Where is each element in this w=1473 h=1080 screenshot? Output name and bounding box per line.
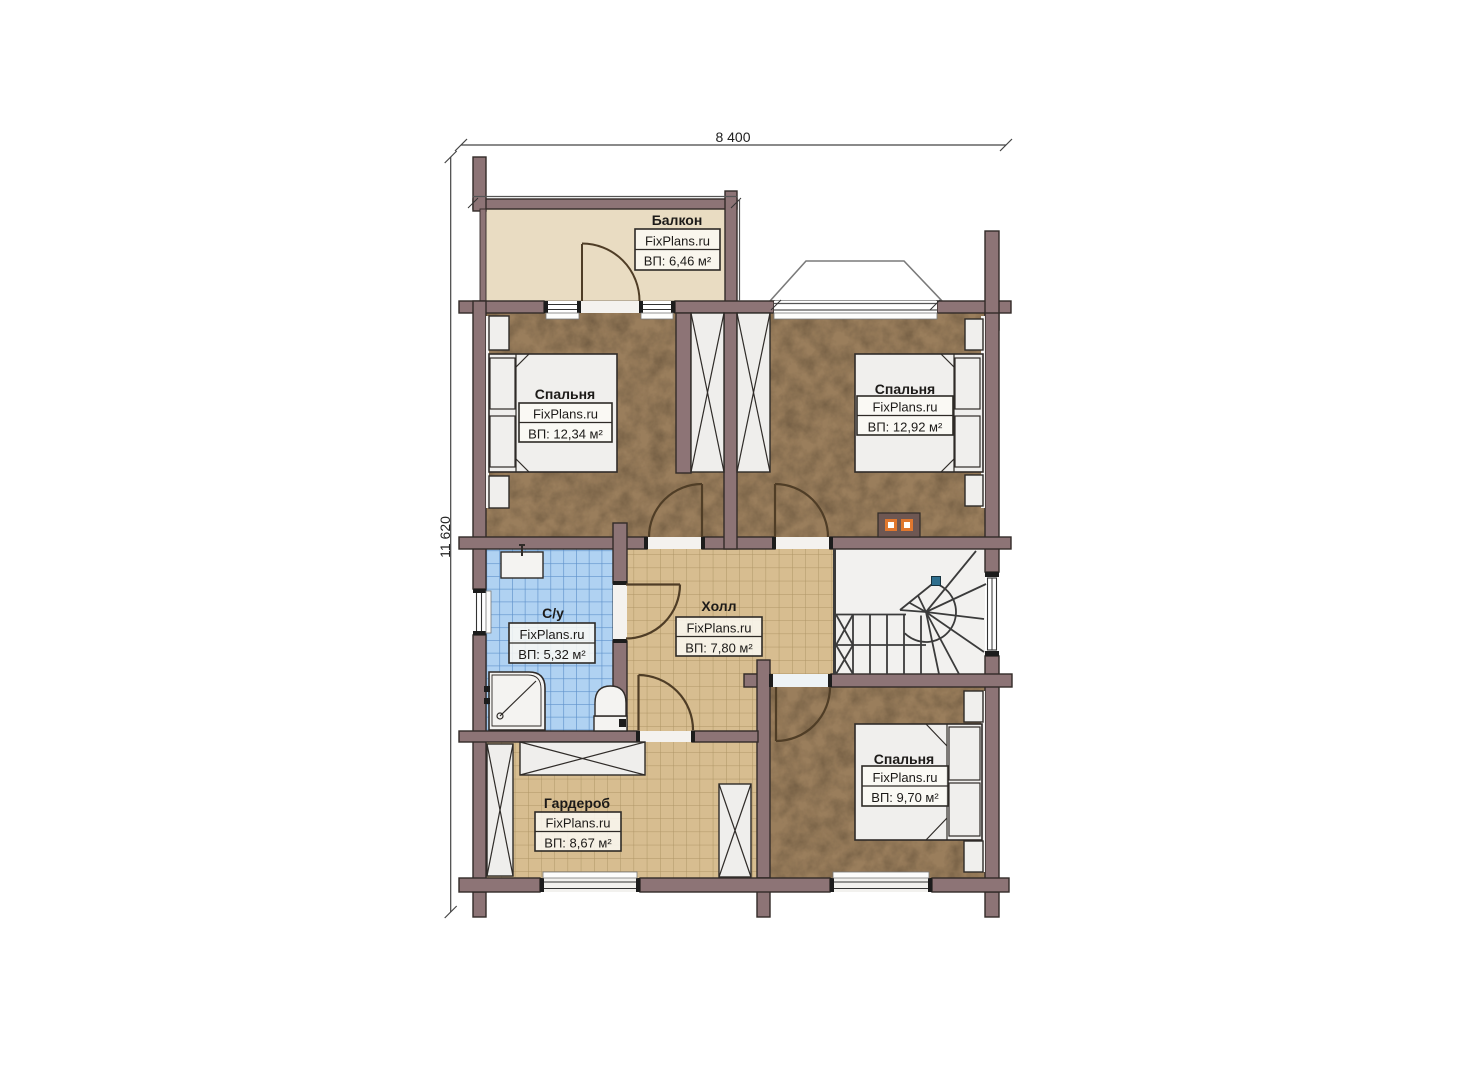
- svg-text:Спальня: Спальня: [535, 386, 595, 402]
- svg-text:Спальня: Спальня: [874, 751, 934, 767]
- svg-text:ВП: 9,70 м²: ВП: 9,70 м²: [871, 790, 939, 805]
- svg-text:8 400: 8 400: [715, 129, 750, 145]
- svg-text:ВП: 12,92 м²: ВП: 12,92 м²: [868, 420, 943, 435]
- svg-text:FixPlans.ru: FixPlans.ru: [686, 621, 751, 636]
- svg-text:Балкон: Балкон: [652, 212, 703, 228]
- svg-text:ВП: 5,32 м²: ВП: 5,32 м²: [518, 647, 586, 662]
- svg-text:Холл: Холл: [701, 598, 736, 614]
- svg-text:ВП: 8,67 м²: ВП: 8,67 м²: [544, 836, 612, 851]
- svg-text:ВП: 12,34 м²: ВП: 12,34 м²: [528, 427, 603, 442]
- svg-text:FixPlans.ru: FixPlans.ru: [645, 234, 710, 249]
- svg-text:ВП: 6,46 м²: ВП: 6,46 м²: [644, 254, 712, 269]
- svg-text:FixPlans.ru: FixPlans.ru: [519, 627, 584, 642]
- svg-text:FixPlans.ru: FixPlans.ru: [872, 400, 937, 415]
- svg-text:Спальня: Спальня: [875, 381, 935, 397]
- svg-text:FixPlans.ru: FixPlans.ru: [533, 407, 598, 422]
- svg-text:Гардероб: Гардероб: [544, 795, 611, 811]
- svg-text:С/у: С/у: [542, 605, 564, 621]
- svg-text:FixPlans.ru: FixPlans.ru: [545, 816, 610, 831]
- svg-text:ВП: 7,80 м²: ВП: 7,80 м²: [685, 641, 753, 656]
- svg-text:FixPlans.ru: FixPlans.ru: [872, 770, 937, 785]
- svg-text:11 620: 11 620: [437, 516, 453, 558]
